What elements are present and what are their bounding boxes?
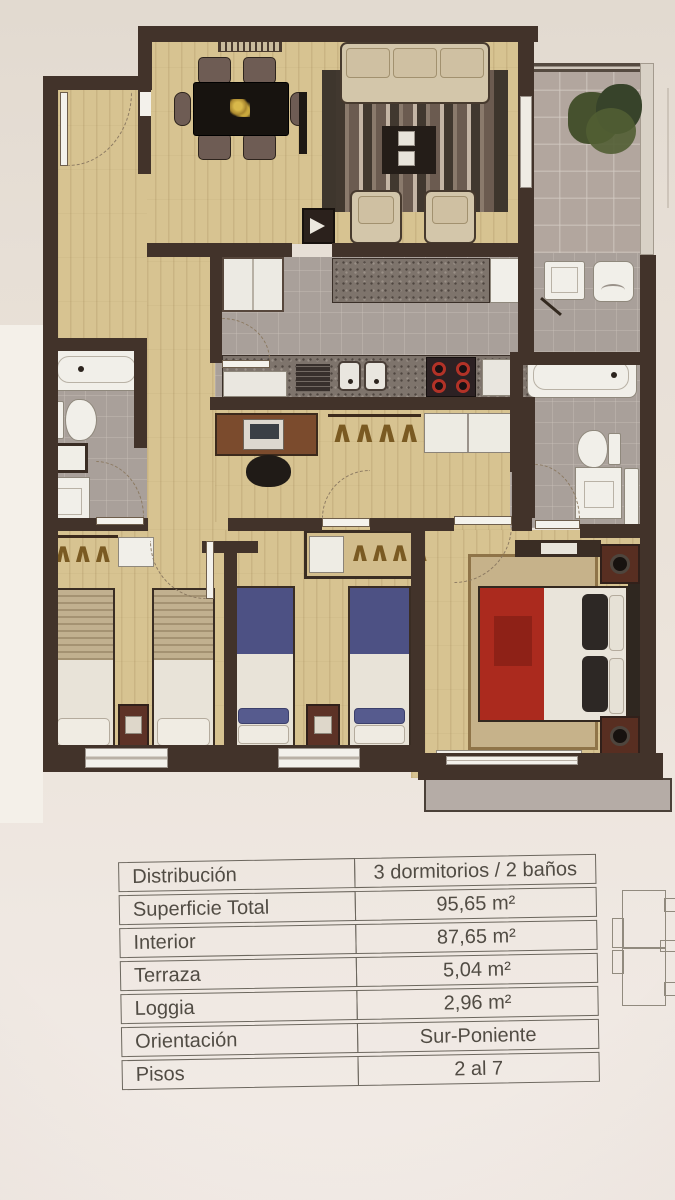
bed-blanket [54, 590, 113, 660]
table-row: Orientación Sur-Poniente [121, 1019, 599, 1057]
bed-pillow [609, 658, 624, 714]
bed-blanket-blue [350, 588, 409, 654]
bathtub-drain [78, 366, 84, 372]
bathtub-inner [57, 356, 136, 383]
tv-panel [299, 92, 307, 154]
vanity-basin [584, 481, 614, 508]
nightstand-tray [314, 716, 332, 734]
coffee-table-tray [398, 131, 415, 146]
wall-bathR-left [510, 358, 523, 472]
entry-door [60, 92, 68, 166]
window-master [446, 756, 578, 765]
nightstand-master [600, 544, 640, 584]
armchair-cushion [358, 196, 394, 224]
stove [426, 357, 476, 397]
hall-closet-hangers: ∧∧∧∧∧∧ [330, 418, 422, 452]
bed-pillow [609, 595, 624, 651]
table-row: Interior 87,65 m² [119, 920, 597, 958]
spec-label: Interior [119, 924, 356, 958]
armchair [350, 190, 402, 244]
dining-chair [198, 133, 231, 160]
spec-label: Orientación [121, 1023, 358, 1057]
wall-bed-T-vertical [224, 541, 237, 760]
wall-bed2-top-left [228, 518, 322, 531]
window [85, 748, 168, 768]
master-dresser [515, 540, 601, 557]
laptop-screen [250, 424, 279, 439]
wall-entry-connector [138, 26, 152, 90]
bedroom1-door [206, 541, 214, 599]
table-centerpiece [230, 99, 250, 117]
wall-bathR-top [510, 352, 656, 365]
bed-red-fold [494, 616, 532, 666]
paper-crease-line [667, 88, 669, 208]
table-row: Terraza 5,04 m² [120, 953, 598, 991]
nightstand [118, 704, 149, 748]
terrace-window [520, 96, 532, 188]
lamp [610, 554, 630, 574]
hall-shelves [424, 413, 512, 453]
specs-table: Distribución 3 dormitorios / 2 baños Sup… [118, 854, 600, 1090]
plant [568, 84, 644, 156]
spec-label: Loggia [120, 990, 357, 1024]
dining-chair [198, 57, 231, 84]
side-table-decor [310, 218, 325, 234]
wall-kitchen-top [332, 243, 518, 257]
armchair-cushion [432, 196, 468, 224]
island-appliance [490, 258, 520, 303]
armchair [424, 190, 476, 244]
spec-value: 2 al 7 [357, 1052, 599, 1086]
spec-value: 95,65 m² [355, 887, 597, 921]
vanity-sink [575, 467, 622, 519]
washing-machine [593, 261, 634, 302]
ensuite-door [535, 520, 580, 529]
balcony [424, 778, 672, 812]
sofa [340, 42, 490, 104]
toilet-bowl [577, 430, 608, 468]
washer-door-arc [601, 284, 625, 296]
kitchen-island-counter [332, 258, 490, 303]
nightstand [306, 704, 340, 748]
bed-blanket [154, 590, 213, 660]
floorplan-photo: ∧∧∧∧∧∧ ∧∧∧ ∧∧∧∧ [0, 0, 675, 1200]
keyplan-tab [660, 940, 675, 952]
wall-bathL-right [134, 346, 147, 448]
single-bed [152, 588, 215, 752]
spec-value: 5,04 m² [356, 953, 598, 987]
bedroom2-closet-hangers: ∧∧∧∧ [349, 539, 413, 571]
spec-label: Pisos [122, 1056, 359, 1090]
stove-burner [456, 379, 470, 393]
corridor-floor [147, 244, 215, 526]
lamp [610, 726, 630, 746]
coffee-table-tray [398, 151, 415, 166]
shower-panel [624, 468, 639, 528]
wall-bed2-master [411, 518, 425, 760]
counter-cabinet [223, 371, 287, 397]
dresser-top [541, 543, 577, 554]
toilet-tank [608, 433, 621, 465]
wall-right-outer [640, 255, 656, 765]
keyplan-unit [622, 948, 666, 1006]
sideboard [218, 41, 282, 52]
wall-kitchen-left [210, 257, 222, 363]
paper-light-strip [0, 325, 43, 823]
sofa-cushion [346, 48, 390, 78]
office-chair [246, 455, 291, 487]
single-bed-blue [232, 586, 295, 748]
loggia-sink-basin [551, 267, 578, 293]
wall-dining-kitchen [147, 243, 292, 257]
vanity-basin [55, 488, 82, 515]
keyplan-notch [612, 950, 624, 974]
spec-label: Superficie Total [119, 891, 356, 925]
sofa-cushion [393, 48, 437, 78]
closet-shelf [309, 536, 344, 573]
kitchen-door [222, 360, 270, 368]
laptop [243, 419, 284, 450]
bed-dark-pillow [582, 656, 608, 712]
bed-pillow [354, 725, 405, 744]
table-row: Loggia 2,96 m² [120, 986, 598, 1024]
spec-label: Terraza [120, 957, 357, 991]
wall-niche [140, 92, 151, 116]
plant-foliage [586, 108, 636, 154]
side-table [302, 208, 335, 244]
loggia-sink [544, 261, 585, 300]
bed-dark-pillow [582, 594, 608, 650]
stove-burner [432, 379, 446, 393]
wall-loggia-left [518, 256, 534, 356]
counter-grill [296, 364, 330, 392]
closet-sliding-door [118, 537, 154, 567]
sofa-cushion [440, 48, 484, 78]
bedroom2-closet: ∧∧∧∧ [304, 530, 418, 579]
spec-value: 87,65 m² [355, 920, 597, 954]
single-bed-blue [348, 586, 411, 748]
kitchen-sink [364, 361, 387, 391]
bed-pillow-blue [354, 708, 405, 724]
spec-label: Distribución [118, 858, 355, 892]
bathtub-drain [611, 372, 617, 378]
wall-bathL-top [43, 338, 147, 351]
dining-chair [243, 133, 276, 160]
dining-chair [243, 57, 276, 84]
kitchen-sink [338, 361, 361, 391]
spec-value: Sur-Poniente [357, 1019, 599, 1053]
nightstand-tray [125, 716, 142, 734]
bed-pillow [238, 725, 289, 744]
fridge [222, 257, 284, 312]
wall-entry-top [50, 76, 146, 90]
double-bed [478, 586, 628, 722]
bedroom2-door [322, 518, 370, 527]
spec-value: 3 dormitorios / 2 baños [354, 854, 596, 888]
keyplan-tab [664, 898, 675, 912]
bed-pillow [57, 718, 110, 746]
dining-chair [174, 92, 191, 126]
keyplan-tab [664, 982, 675, 996]
keyplan-notch [612, 918, 624, 948]
bathtub [51, 350, 144, 391]
coffee-table [382, 126, 436, 174]
spec-value: 2,96 m² [356, 986, 598, 1020]
single-bed [52, 588, 115, 752]
bed-pillow-blue [238, 708, 289, 724]
nightstand-master [600, 716, 640, 756]
toilet-bowl [65, 399, 97, 441]
table-row: Superficie Total 95,65 m² [119, 887, 597, 925]
sink-drain [348, 379, 353, 384]
bed-blanket-blue [234, 588, 293, 654]
bathroom-left-door [96, 517, 144, 525]
wall-top-main [138, 26, 538, 42]
wall-left-outer [43, 76, 58, 768]
bed-pillow [157, 718, 210, 746]
terrace-railing [532, 63, 640, 72]
bed-red-blanket [480, 588, 544, 720]
wall-kitchen-bottom [210, 397, 535, 410]
table-row: Pisos 2 al 7 [122, 1052, 600, 1090]
master-door [454, 516, 512, 525]
table-row: Distribución 3 dormitorios / 2 baños [118, 854, 596, 892]
bedroom1-closet-hangers: ∧∧∧ [52, 540, 118, 570]
sink-drain [374, 379, 379, 384]
window [278, 748, 360, 768]
wall-master-hall-right [512, 518, 532, 531]
stove-burner [432, 362, 446, 376]
stove-burner [456, 362, 470, 376]
